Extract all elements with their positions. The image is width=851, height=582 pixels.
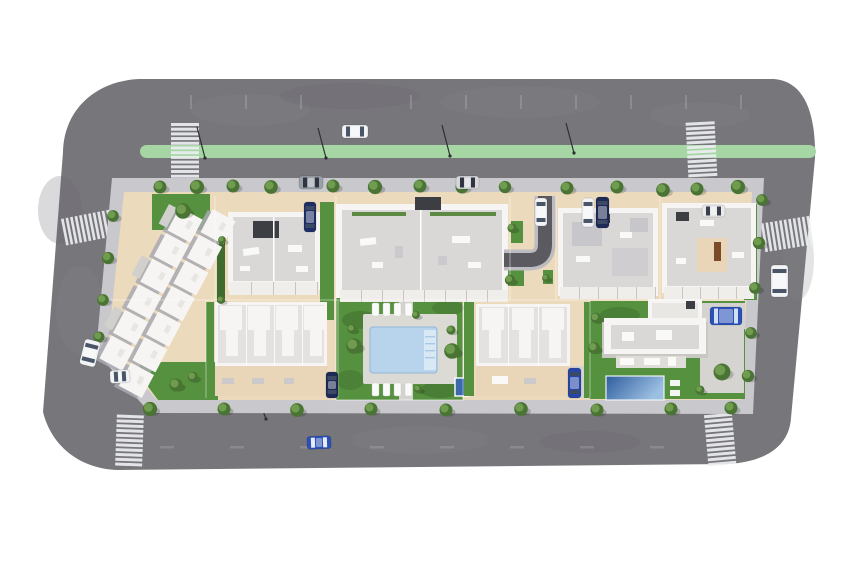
sun-lounger bbox=[372, 303, 379, 316]
car bbox=[582, 198, 594, 227]
car bbox=[710, 307, 742, 325]
sun-lounger bbox=[383, 303, 390, 316]
car bbox=[568, 368, 581, 398]
site-plan-canvas bbox=[0, 0, 851, 582]
rowhouses-southwest bbox=[215, 302, 327, 396]
car bbox=[326, 372, 338, 398]
sun-lounger bbox=[405, 303, 412, 316]
car bbox=[702, 205, 725, 217]
sun-lounger bbox=[372, 383, 379, 396]
car bbox=[299, 176, 323, 189]
crosswalk bbox=[115, 415, 144, 467]
sun-lounger bbox=[383, 383, 390, 396]
terrace-row bbox=[229, 282, 319, 295]
car bbox=[456, 176, 479, 189]
terrace-row bbox=[664, 287, 754, 299]
car bbox=[342, 125, 368, 138]
rowhouse-roofs bbox=[482, 308, 564, 358]
sun-lounger bbox=[394, 383, 401, 396]
apartment-building-north bbox=[336, 197, 508, 298]
pergola bbox=[714, 242, 721, 261]
car bbox=[304, 202, 316, 232]
car bbox=[535, 198, 547, 226]
car bbox=[110, 369, 131, 383]
site-plan-render bbox=[0, 0, 851, 582]
car bbox=[771, 265, 788, 297]
villa-pool bbox=[606, 376, 664, 400]
terrace-row bbox=[560, 287, 656, 299]
car bbox=[596, 197, 609, 228]
sun-lounger bbox=[405, 383, 412, 396]
car bbox=[307, 436, 331, 450]
lawn-strip bbox=[206, 302, 214, 398]
sun-lounger bbox=[394, 303, 401, 316]
